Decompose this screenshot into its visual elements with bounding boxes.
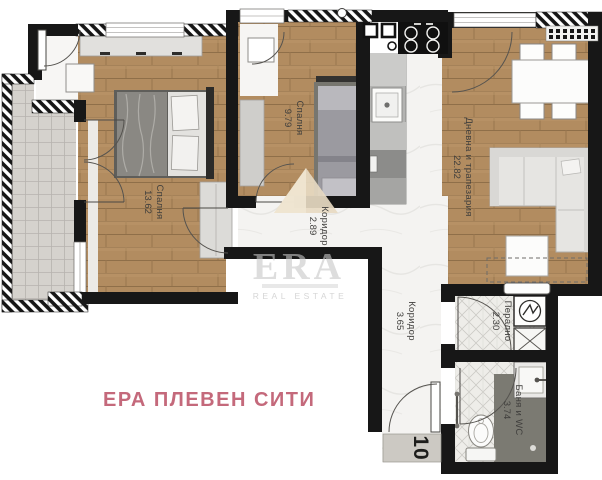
bedroom-1-sill-strip — [88, 120, 98, 292]
watermark-text: ERA — [253, 246, 345, 288]
wall — [74, 100, 86, 122]
grille-strip — [546, 26, 598, 41]
room-area: 3.65 — [394, 312, 405, 331]
room-name: Дневна и трапезария — [463, 117, 474, 216]
wall — [356, 22, 370, 208]
window-bedroom-1 — [106, 23, 184, 37]
room-area: 2.89 — [307, 217, 318, 236]
wall — [546, 296, 558, 474]
balcony-wall — [2, 74, 12, 312]
exterior-wall-hatch — [288, 10, 372, 22]
balcony-floor-upper — [12, 82, 34, 116]
wall — [443, 350, 546, 362]
room-name: Коридор — [319, 206, 330, 246]
room-area: 3.74 — [501, 401, 512, 420]
balcony — [12, 82, 76, 302]
wall — [226, 10, 238, 208]
floor-plan: ERA REAL ESTATE Спалня 13.62 Спалня 9.79… — [0, 0, 602, 480]
window-bedroom-2 — [240, 9, 284, 23]
coffee-table-icon — [506, 236, 548, 276]
room-name: Коридор — [406, 301, 417, 341]
room-area: 9.79 — [282, 109, 293, 128]
wall — [238, 196, 256, 208]
kitchen-sink-icon — [372, 88, 402, 122]
radiator — [504, 283, 550, 294]
window-living — [454, 13, 536, 27]
toilet-icon — [466, 415, 496, 461]
watermark-divider — [262, 284, 338, 288]
room-name: Спалня — [294, 100, 305, 135]
kitchen-counter-icon — [368, 54, 406, 204]
balcony-wall — [2, 74, 34, 84]
wardrobe-2 — [240, 100, 264, 186]
wall — [56, 292, 238, 304]
wall — [441, 462, 558, 474]
room-name: Перално — [502, 301, 513, 342]
washing-machine-icon — [514, 296, 546, 326]
wall — [368, 247, 382, 432]
side-table — [66, 64, 94, 92]
room-area: 2.30 — [490, 312, 501, 331]
project-name: ЕРА ПЛЕВЕН СИТИ — [103, 389, 315, 411]
wall — [74, 200, 86, 242]
unit-number-label: 10 — [409, 435, 432, 460]
window-balcony — [74, 242, 86, 296]
balcony-wall — [32, 100, 78, 113]
room-area: 13.62 — [142, 190, 153, 214]
stove-icon — [398, 22, 448, 54]
wall-hatch — [48, 292, 82, 306]
wall — [441, 424, 455, 474]
room-area: 22.82 — [451, 155, 462, 179]
shower-drain-icon — [530, 445, 536, 451]
room-name: Баня и WC — [513, 384, 524, 435]
unit-number: 10 — [409, 435, 432, 460]
balcony-floor — [12, 112, 76, 302]
watermark-subtext: REAL ESTATE — [253, 291, 348, 301]
corridor-living-junction-floor — [441, 247, 448, 284]
double-bed-icon — [114, 87, 214, 179]
room-name: Спалня — [154, 184, 165, 219]
vent-symbol — [338, 9, 347, 18]
wall — [588, 12, 602, 296]
wall — [441, 284, 455, 302]
wall — [441, 344, 455, 368]
